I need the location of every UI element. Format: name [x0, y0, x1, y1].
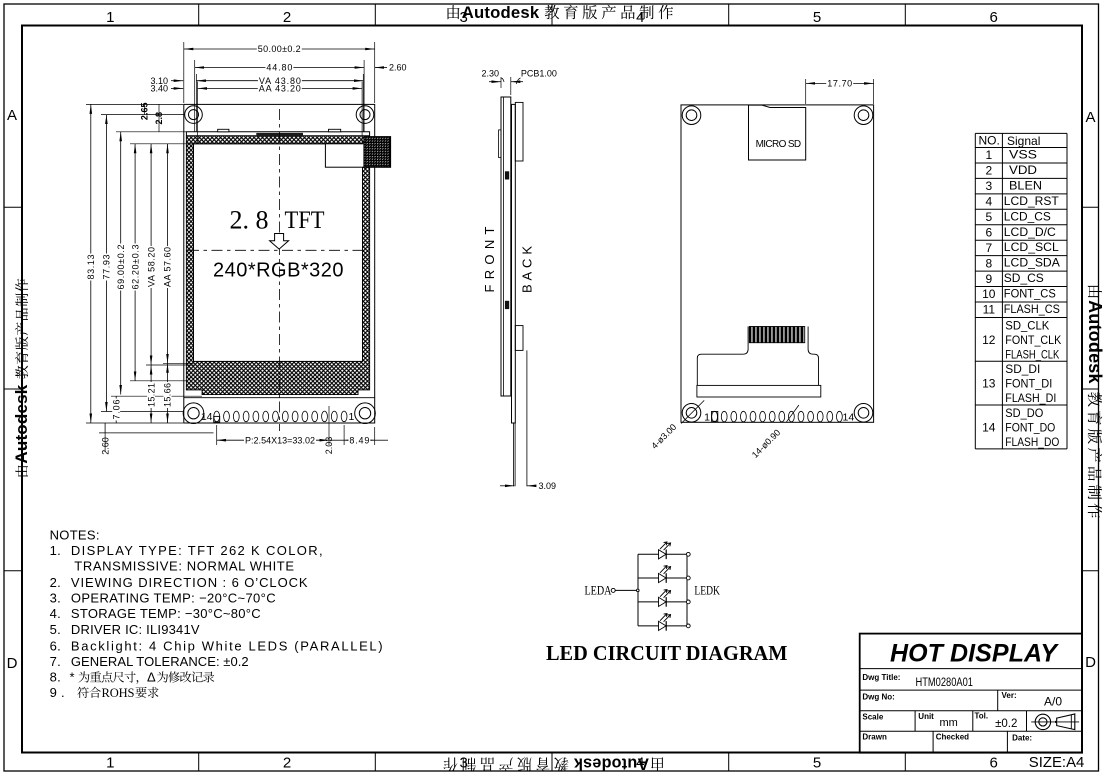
svg-text:STORAGE TEMP: −30°C~80°C: STORAGE TEMP: −30°C~80°C [71, 606, 261, 621]
svg-text:5.: 5. [50, 622, 61, 637]
svg-text:LCD_D/C: LCD_D/C [1004, 225, 1056, 239]
svg-text:DRIVER IC: ILI9341V: DRIVER IC: ILI9341V [71, 622, 200, 637]
svg-text:11: 11 [983, 303, 996, 317]
svg-text:FONT_DO: FONT_DO [1005, 421, 1055, 435]
svg-text:2: 2 [283, 9, 291, 26]
svg-text:Autodesk: Autodesk [462, 3, 540, 22]
svg-text:VA 58.20: VA 58.20 [146, 247, 156, 287]
svg-text:4: 4 [985, 195, 992, 209]
svg-text:NO.: NO. [979, 133, 1000, 147]
svg-text:4.: 4. [50, 606, 61, 621]
svg-text:Scale: Scale [862, 712, 883, 721]
svg-text:Autodesk: Autodesk [12, 384, 31, 463]
svg-text:P:2.54X13=33.02: P:2.54X13=33.02 [245, 435, 315, 445]
svg-text:A/0: A/0 [1044, 695, 1062, 709]
svg-text:mm: mm [940, 717, 958, 729]
svg-text:14: 14 [843, 411, 855, 423]
svg-text:FONT_CLK: FONT_CLK [1005, 333, 1061, 347]
svg-text:Autodesk: Autodesk [1085, 300, 1105, 384]
svg-text:15.66: 15.66 [163, 383, 173, 407]
svg-text:1.: 1. [50, 543, 61, 558]
svg-text:2: 2 [283, 755, 291, 772]
svg-text:GENERAL TOLERANCE: ±0.2: GENERAL TOLERANCE: ±0.2 [71, 654, 249, 669]
svg-text:5: 5 [985, 210, 992, 224]
svg-text:2: 2 [985, 164, 992, 178]
svg-text:PCB1.00: PCB1.00 [521, 69, 557, 79]
svg-text:SD_DI: SD_DI [1005, 362, 1040, 376]
svg-text:62.20±0.3: 62.20±0.3 [130, 245, 140, 290]
svg-text:Autodesk: Autodesk [573, 755, 649, 773]
svg-text:17.70: 17.70 [827, 79, 852, 89]
svg-text:LCD_SCL: LCD_SCL [1004, 240, 1059, 254]
svg-text:SD_CS: SD_CS [1004, 271, 1044, 285]
svg-text:Signal: Signal [1007, 134, 1040, 148]
svg-text:6: 6 [990, 9, 998, 26]
svg-text:12: 12 [982, 333, 996, 347]
svg-text:AA 43.20: AA 43.20 [259, 84, 301, 94]
svg-text:Date:: Date: [1012, 733, 1032, 742]
svg-text:MICRO SD: MICRO SD [756, 139, 802, 150]
svg-text:LCD_SDA: LCD_SDA [1004, 256, 1060, 270]
svg-text:44.80: 44.80 [266, 63, 292, 73]
svg-text:6.: 6. [50, 638, 61, 653]
svg-text:LEDK: LEDK [694, 583, 720, 597]
svg-text:5: 5 [813, 755, 821, 772]
svg-text:OPERATING TEMP: −20°C~70°C: OPERATING TEMP: −20°C~70°C [71, 590, 276, 605]
svg-text:2.03: 2.03 [324, 437, 334, 455]
svg-text:FONT_DI: FONT_DI [1005, 377, 1052, 391]
svg-text:DISPLAY TYPE: TFT 262 K CO: DISPLAY TYPE: TFT 262 K COLOR, [71, 543, 323, 558]
svg-text:9 .: 9 . [50, 685, 65, 700]
svg-text:VDD: VDD [1009, 163, 1037, 177]
svg-text:Dwg No:: Dwg No: [862, 692, 894, 701]
svg-text:4: 4 [636, 9, 644, 26]
svg-text:D: D [1085, 654, 1096, 671]
svg-text:±0.2: ±0.2 [995, 718, 1017, 730]
svg-text:1: 1 [106, 755, 114, 772]
svg-text:1: 1 [349, 411, 355, 423]
svg-text:1: 1 [704, 411, 710, 423]
svg-text:77.93: 77.93 [102, 255, 112, 280]
svg-text:VSS: VSS [1009, 148, 1037, 162]
svg-text:3.: 3. [50, 590, 61, 605]
svg-text:ROHS: ROHS [102, 686, 135, 700]
svg-text:7.06: 7.06 [111, 400, 121, 420]
svg-text:NOTES:: NOTES: [50, 528, 100, 543]
svg-text:Unit: Unit [918, 712, 934, 721]
svg-text:LCD_RST: LCD_RST [1004, 194, 1060, 208]
svg-text:FLASH_CLK: FLASH_CLK [1005, 347, 1059, 361]
svg-text:LED CIRCUIT DIAGRAM: LED CIRCUIT DIAGRAM [546, 641, 788, 665]
svg-text:VIEWING DIRECTION : 6 O’CL: VIEWING DIRECTION : 6 O’CLOCK [71, 575, 308, 590]
svg-text:FONT_CS: FONT_CS [1004, 287, 1056, 301]
svg-text:FLASH_CS: FLASH_CS [1004, 302, 1060, 316]
svg-text:2.: 2. [50, 575, 61, 590]
svg-text:HTM0280A01: HTM0280A01 [916, 677, 974, 689]
svg-text:3: 3 [985, 179, 992, 193]
svg-text:9: 9 [985, 272, 992, 286]
svg-text:2. 8: 2. 8 [230, 206, 269, 235]
svg-text:HOT DISPLAY: HOT DISPLAY [890, 640, 1059, 668]
svg-text:8.49: 8.49 [349, 435, 369, 445]
svg-text:Checked: Checked [936, 733, 969, 742]
svg-text:14: 14 [201, 411, 213, 423]
svg-text:5: 5 [813, 9, 821, 26]
svg-text:10: 10 [982, 287, 996, 301]
svg-text:SIZE:A4: SIZE:A4 [1029, 754, 1085, 771]
svg-text:SD_DO: SD_DO [1005, 406, 1043, 420]
svg-text:LEDA: LEDA [585, 583, 612, 597]
svg-text:3.40: 3.40 [151, 84, 169, 94]
svg-text:8: 8 [985, 256, 992, 270]
svg-text:TFT: TFT [285, 207, 325, 234]
svg-text:2.30: 2.30 [482, 69, 500, 79]
svg-text:Tol.: Tol. [975, 711, 989, 720]
svg-text:6: 6 [985, 225, 992, 239]
svg-text:8.: 8. [50, 670, 61, 685]
svg-text:2.60: 2.60 [389, 63, 407, 73]
svg-text:15.21: 15.21 [146, 383, 156, 407]
svg-text:Δ: Δ [147, 670, 156, 685]
svg-text:FLASH_DO: FLASH_DO [1005, 435, 1059, 449]
svg-text:Dwg Title:: Dwg Title: [862, 673, 900, 682]
svg-text:A: A [1085, 109, 1095, 126]
svg-text:BLEN: BLEN [1009, 178, 1042, 192]
svg-text:6: 6 [990, 755, 998, 772]
svg-text:3: 3 [460, 755, 468, 772]
svg-text:Ver:: Ver: [1002, 691, 1017, 700]
svg-text:50.00±0.2: 50.00±0.2 [258, 44, 301, 54]
svg-text:1: 1 [106, 9, 114, 26]
svg-text:2.60: 2.60 [100, 437, 110, 455]
svg-text:240*RGB*320: 240*RGB*320 [213, 260, 344, 282]
svg-text:7: 7 [985, 241, 992, 255]
svg-text:TRANSMISSIVE: NORMAL WHITE: TRANSMISSIVE: NORMAL WHITE [74, 558, 294, 573]
svg-text:13: 13 [982, 377, 996, 391]
svg-text:LCD_CS: LCD_CS [1004, 209, 1051, 223]
svg-text:D: D [7, 655, 18, 672]
svg-text:69.00±0.2: 69.00±0.2 [116, 245, 126, 290]
svg-text:1: 1 [985, 148, 992, 162]
svg-text:7.: 7. [50, 654, 61, 669]
svg-text:Backlight: 4 Chip White LE: Backlight: 4 Chip White LEDS (PARALLEL) [71, 638, 383, 653]
svg-text:SD_CLK: SD_CLK [1005, 318, 1049, 332]
svg-text:FLASH_DI: FLASH_DI [1005, 391, 1056, 405]
svg-text:*: * [70, 670, 75, 685]
svg-text:3.09: 3.09 [539, 481, 557, 491]
svg-text:14: 14 [982, 421, 996, 435]
svg-text:AA 57.60: AA 57.60 [163, 247, 173, 287]
svg-text:Drawn: Drawn [862, 733, 887, 742]
svg-text:A: A [7, 107, 17, 124]
svg-text:83.13: 83.13 [86, 255, 96, 280]
